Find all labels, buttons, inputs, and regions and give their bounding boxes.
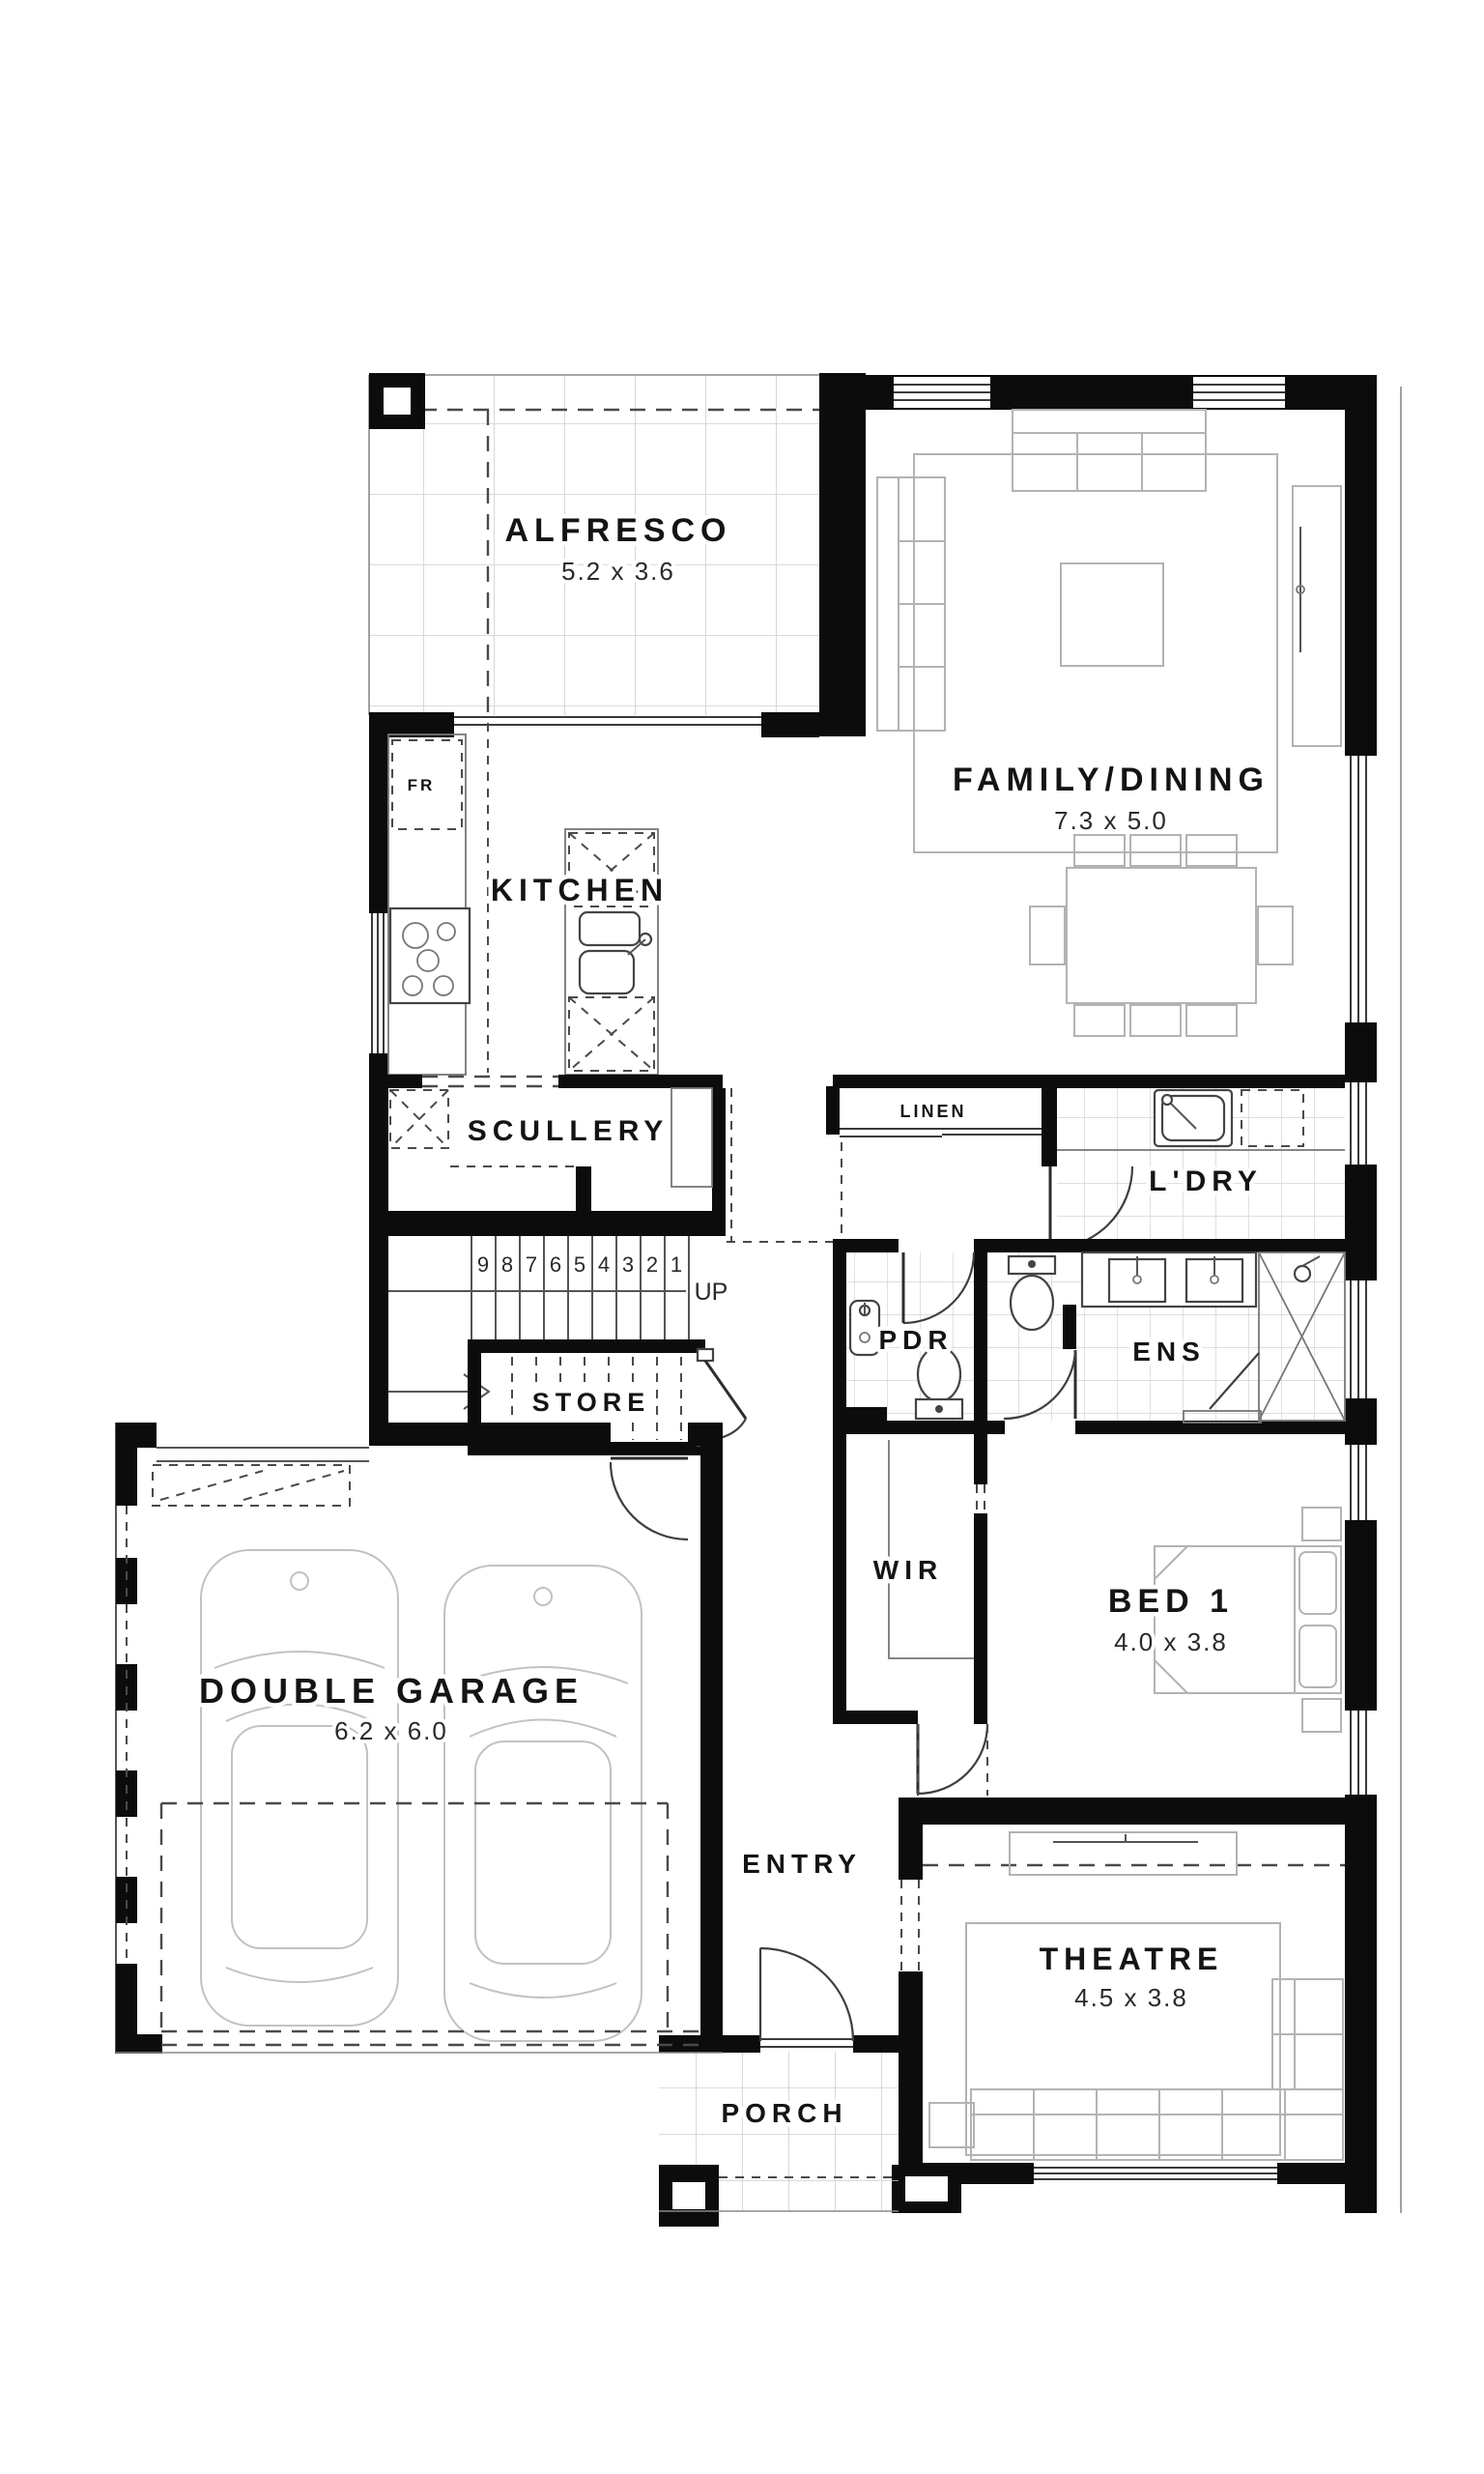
- theatre-side-table: [929, 2103, 974, 2147]
- wir-label: WIR: [873, 1555, 943, 1585]
- powder-label: PDR: [878, 1325, 953, 1355]
- stair-up-label: UP: [695, 1279, 728, 1306]
- stair-number-4: 4: [598, 1252, 610, 1277]
- garage-door-zone: [116, 1803, 723, 2053]
- powder-basin: [850, 1301, 879, 1355]
- fridge-label: FR: [408, 776, 436, 794]
- bed1-label: BED 1: [1108, 1583, 1234, 1620]
- room-porch: PORCH: [659, 1948, 918, 2227]
- kitchen-sink: [580, 912, 651, 993]
- theatre-dims: 4.5 x 3.8: [1074, 1983, 1188, 2012]
- garage-internal-door: [611, 1458, 688, 1539]
- family-sofa-left: [877, 477, 945, 731]
- ensuite-label: ENS: [1132, 1337, 1206, 1366]
- room-family-dining: FAMILY/DINING 7.3 x 5.0: [866, 375, 1345, 1036]
- room-bed1: BED 1 4.0 x 3.8: [1108, 1508, 1341, 1732]
- theatre-label: THEATRE: [1040, 1942, 1224, 1976]
- room-powder: PDR: [833, 1239, 987, 1724]
- alfresco-sliding-door: [454, 717, 761, 725]
- kitchen-label: KITCHEN: [491, 873, 669, 907]
- linen-label: LINEN: [900, 1102, 967, 1121]
- garage-dims: 6.2 x 6.0: [334, 1716, 448, 1745]
- wir-door: [918, 1724, 987, 1796]
- theatre-tv-cabinet: [1010, 1832, 1237, 1875]
- room-scullery: SCULLERY: [369, 1075, 726, 1236]
- alfresco-label: ALFRESCO: [505, 512, 732, 549]
- family-dims: 7.3 x 5.0: [1054, 806, 1168, 835]
- stair-number-7: 7: [526, 1252, 537, 1277]
- garage-left-wall: [116, 1423, 162, 2054]
- family-sofa-top: [1013, 410, 1206, 491]
- kitchen-island: [565, 829, 658, 1075]
- bed1-bed: [1155, 1546, 1341, 1693]
- front-door: [760, 1948, 853, 2047]
- linen-sliding-doors: [840, 1129, 1042, 1136]
- ensuite-vanity: [1082, 1252, 1256, 1307]
- family-coffee-table: [1061, 563, 1163, 666]
- room-wir: WIR: [833, 1421, 987, 1796]
- staircase: 9 8 7 6 5 4 3 2 1 UP: [388, 1236, 728, 1409]
- right-outer-wall: [1345, 375, 1401, 2213]
- bed1-dims: 4.0 x 3.8: [1114, 1627, 1228, 1656]
- room-theatre: THEATRE 4.5 x 3.8: [892, 1798, 1353, 2213]
- scullery-pantry-cabinet: [390, 1090, 448, 1148]
- dining-table: [1030, 835, 1293, 1036]
- floorplan-drawing: ALFRESCO 5.2 x 3.6: [0, 0, 1484, 2474]
- laundry-label: L'DRY: [1149, 1165, 1263, 1197]
- floorplan-page: ALFRESCO 5.2 x 3.6: [0, 0, 1484, 2474]
- wir-shelving: [889, 1440, 974, 1658]
- alfresco-family-wall: [819, 373, 866, 736]
- powder-toilet: [916, 1347, 962, 1419]
- family-tv-unit: [1293, 486, 1341, 746]
- cooktop: [390, 908, 470, 1003]
- ensuite-toilet: [1009, 1256, 1055, 1330]
- stair-number-9: 9: [477, 1252, 489, 1277]
- stair-number-1: 1: [671, 1252, 682, 1277]
- room-garage: DOUBLE GARAGE 6.2 x 6.0: [116, 1423, 723, 2054]
- bed1-side-table-bottom: [1302, 1699, 1341, 1732]
- store-label: STORE: [532, 1388, 651, 1417]
- stair-number-2: 2: [646, 1252, 658, 1277]
- porch-label: PORCH: [721, 2098, 847, 2128]
- bed1-side-table-top: [1302, 1508, 1341, 1540]
- family-label: FAMILY/DINING: [953, 762, 1270, 798]
- room-laundry: L'DRY: [1050, 1088, 1345, 1249]
- room-alfresco: ALFRESCO 5.2 x 3.6: [369, 373, 866, 737]
- alfresco-dims: 5.2 x 3.6: [561, 557, 675, 586]
- garage-label: DOUBLE GARAGE: [199, 1671, 584, 1711]
- kitchen-window: [372, 913, 384, 1053]
- garage-car-left: [201, 1550, 398, 2026]
- scullery-label: SCULLERY: [468, 1115, 670, 1147]
- stair-number-8: 8: [501, 1252, 513, 1277]
- garage-storage-recess: [153, 1465, 350, 1506]
- stair-number-5: 5: [574, 1252, 585, 1277]
- theatre-window-bottom: [1034, 2168, 1277, 2179]
- stair-number-3: 3: [622, 1252, 634, 1277]
- entry-label: ENTRY: [742, 1849, 862, 1879]
- stair-number-6: 6: [550, 1252, 561, 1277]
